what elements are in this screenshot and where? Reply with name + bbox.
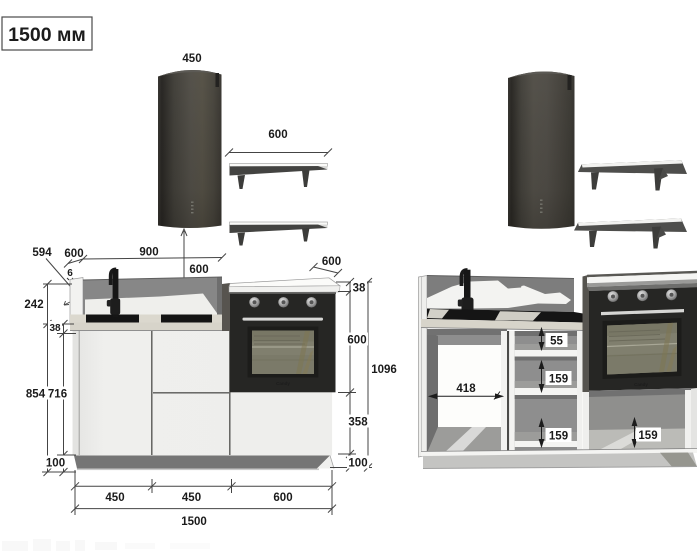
svg-text:594: 594 xyxy=(32,247,52,259)
svg-text:55: 55 xyxy=(550,336,563,348)
svg-text:450: 450 xyxy=(182,492,201,504)
svg-text:418: 418 xyxy=(456,383,476,395)
svg-text:716: 716 xyxy=(48,389,67,401)
svg-text:Candy: Candy xyxy=(276,381,290,386)
svg-text:600: 600 xyxy=(347,335,366,347)
svg-text:159: 159 xyxy=(549,374,568,386)
svg-text:Candy: Candy xyxy=(634,382,648,387)
svg-text:1096: 1096 xyxy=(371,364,397,376)
svg-text:1500 мм: 1500 мм xyxy=(8,24,86,46)
svg-text:159: 159 xyxy=(549,431,568,443)
svg-text:900: 900 xyxy=(139,247,158,259)
svg-text:450: 450 xyxy=(105,492,124,504)
svg-text:6: 6 xyxy=(67,268,73,279)
svg-text:242: 242 xyxy=(24,299,43,311)
svg-text:450: 450 xyxy=(182,53,201,65)
svg-text:600: 600 xyxy=(189,264,208,276)
svg-text:600: 600 xyxy=(273,492,292,504)
svg-text:159: 159 xyxy=(638,430,657,442)
svg-text:38: 38 xyxy=(353,283,366,295)
svg-text:854: 854 xyxy=(26,389,46,401)
svg-text:38: 38 xyxy=(49,323,61,334)
svg-text:100: 100 xyxy=(348,458,367,470)
svg-text:358: 358 xyxy=(348,417,368,429)
svg-text:600: 600 xyxy=(268,129,287,141)
svg-text:100: 100 xyxy=(46,458,65,470)
svg-text:600: 600 xyxy=(322,256,341,268)
svg-text:600: 600 xyxy=(64,248,83,260)
svg-text:1500: 1500 xyxy=(181,516,207,528)
